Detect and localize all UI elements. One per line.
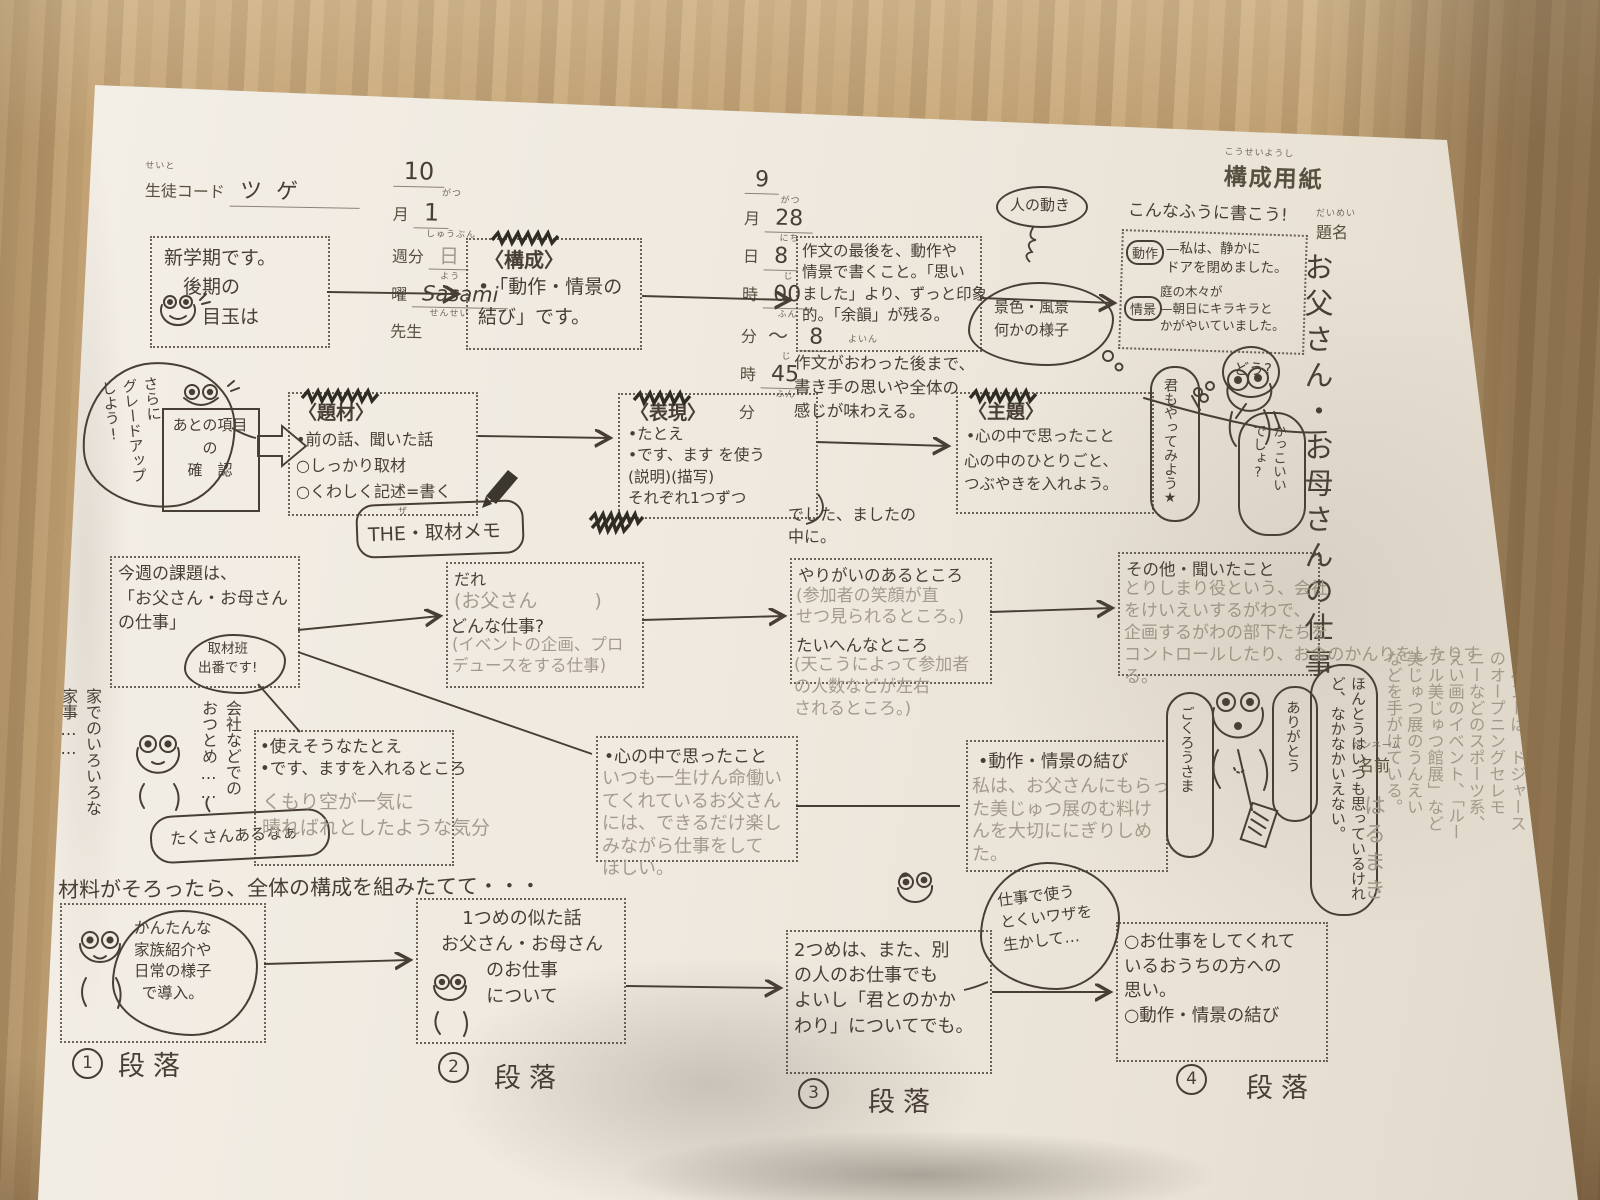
box-material-head: 〈題材〉 xyxy=(298,398,374,425)
sheet-title: 構成用紙 xyxy=(1223,157,1324,194)
box-ending-rule-text: 作文の最後を、動作や 情景で書くこと。「思い ました」より、ずっと印象 的。「余… xyxy=(802,241,987,327)
hard-label: たいへんなところ xyxy=(796,632,928,656)
box-check-items-text: あとの項目 の 確 認 xyxy=(168,414,252,482)
staple-mark-right xyxy=(1030,92,1088,104)
paragraph-1-text: かんたんな 家族紹介や 日常の様子 で導入。 xyxy=(134,918,212,1005)
task-bubble-text: 取材班 出番です! xyxy=(198,640,257,678)
write-hint: こんなふうに書こう! xyxy=(1128,195,1289,226)
tilde: 〜 xyxy=(762,323,795,348)
student-code-value: ツゲ xyxy=(230,173,361,209)
who-value: (お父さん ) xyxy=(454,586,602,613)
center-right-shadow xyxy=(980,240,1600,960)
frog-doodle-1 xyxy=(156,292,216,342)
paragraph-1-label: 段落 xyxy=(118,1044,188,1083)
box-task-text: 今週の課題は、 「お父さん・お母さん の仕事」 xyxy=(118,562,288,636)
essay-title-furigana: だいめい xyxy=(1316,206,1356,219)
reward-value: (参加者の笑顔が直 せつ見られるところ。) xyxy=(796,586,964,629)
staple-mark-left xyxy=(336,85,390,97)
heart-value: いつも一生けん命働い てくれているお父さん には、できるだけ楽し みながら仕事を… xyxy=(602,768,782,881)
sheet-title-block: こうせいようし 構成用紙 xyxy=(1223,144,1325,194)
start-hour: 8 xyxy=(764,243,799,271)
material-item-1: •前の話、聞いた話 xyxy=(296,426,433,450)
heart-label: •心の中で思ったこと xyxy=(604,742,767,767)
weekday-value: 日 xyxy=(429,244,470,271)
pen-doodle xyxy=(478,466,524,518)
worksheet-paper: せいと 生徒コード ツゲ 10がつ月 1しゅうぶん週分 日よう曜 Sasamiせ… xyxy=(0,0,1600,1200)
material-item-2: ○しっかり取材 xyxy=(296,452,406,476)
paragraph-4-label: 段落 xyxy=(1246,1066,1316,1105)
memo-text: THE・取材メモ xyxy=(368,516,502,548)
simile-value: くもり空が一気に 晴ればれとしたような気分 xyxy=(262,790,582,841)
expression-note: でした、ましたの 中に。 xyxy=(788,504,916,549)
simile-label: •使えそうなたとえ •です、ますを入れるところ xyxy=(260,736,466,781)
date-month-value: 9 xyxy=(745,167,780,195)
frog-doodle-7 xyxy=(888,868,942,924)
yoin-furigana: よいん xyxy=(848,332,878,345)
box-expression-body: •たとえ •です、ます を使う (説明)(描写) それぞれ1つずつ xyxy=(628,424,765,510)
job-value: (イベントの企画、プロ デュースをする仕事) xyxy=(452,634,623,677)
memo-furigana: ザ xyxy=(398,504,408,517)
box-expression-head: 〈表現〉 xyxy=(630,398,706,425)
frog-doodle-2 xyxy=(176,380,246,414)
box-kousei-body: •「動作・情景の 結び」です。 xyxy=(478,272,622,333)
box-kousei-head: 〈構成〉 xyxy=(484,244,564,273)
month-value: 10 xyxy=(393,157,444,188)
frog-doodle-3 xyxy=(122,732,192,818)
paragraph-4-number: 4 xyxy=(1176,1064,1207,1095)
week-value: 1 xyxy=(414,198,450,229)
left-edge-shadow xyxy=(40,120,130,1040)
bottom-edge-shadow xyxy=(620,1130,1220,1200)
student-code-label: 生徒コード xyxy=(145,181,225,201)
material-item-3: ○くわしく記述=書く xyxy=(296,478,451,502)
paragraph-1-number: 1 xyxy=(72,1048,103,1079)
bubble-person-motion-text: 人の動き xyxy=(1010,194,1070,215)
essay-title-block: だいめい 題名 xyxy=(1316,206,1356,243)
date-day-value: 28 xyxy=(765,205,814,233)
reward-label: やりがいのあるところ xyxy=(798,562,963,586)
after-note: 作文がおわった後まで、 書き手の思いや全体の 感じが味わえる。 xyxy=(794,351,975,424)
header-student: せいと 生徒コード ツゲ xyxy=(145,158,361,209)
photo-scene: せいと 生徒コード ツゲ 10がつ月 1しゅうぶん週分 日よう曜 Sasamiせ… xyxy=(0,0,1600,1200)
hard-value: (天こうによって参加者 の人数などが左右 されるところ。) xyxy=(794,654,969,720)
